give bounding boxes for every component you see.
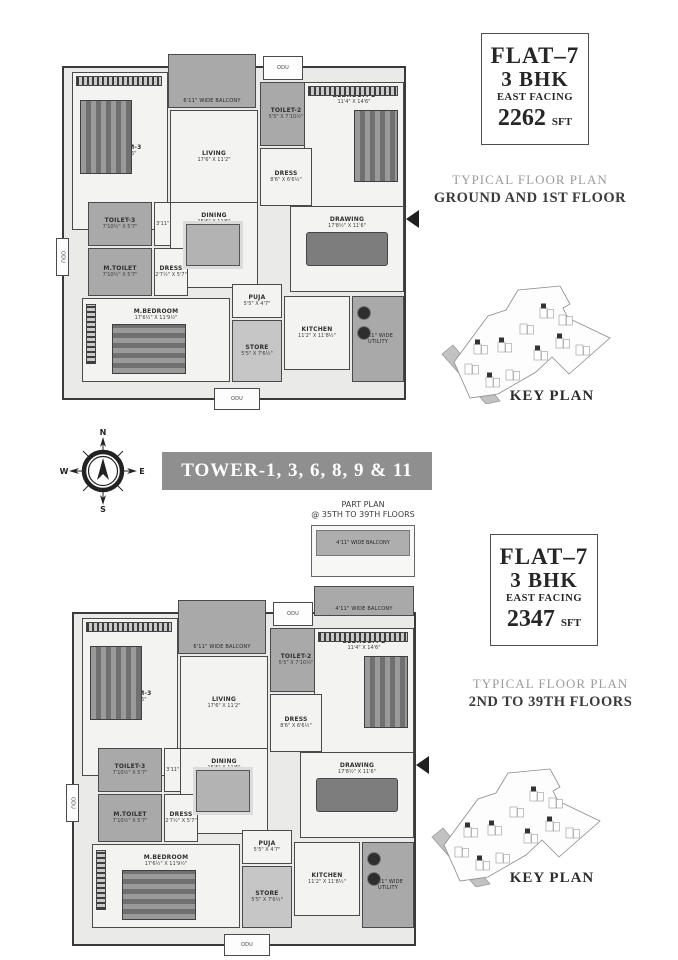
room-dims: 17'6" X 11'2" <box>197 157 230 163</box>
room-dims: 5'5" X 4'7" <box>254 847 281 853</box>
compass-n: N <box>100 428 107 437</box>
part-plan-title: PART PLAN <box>298 500 428 510</box>
tower-block <box>530 791 537 801</box>
room-living: LIVING17'6" X 11'2" <box>170 110 258 204</box>
compass-s: S <box>100 505 106 514</box>
flat-area: 2262 SFT <box>482 105 588 133</box>
room-dims: 17'8½" X 11'6" <box>338 769 376 775</box>
highlighted-flat-marker <box>541 304 546 309</box>
room-dims: 11'4" X 14'6" <box>347 645 380 651</box>
room-name: LIVING <box>212 696 236 703</box>
room-name: ODU <box>70 797 76 809</box>
bed-bedroom3-icon <box>80 100 132 174</box>
wardrobe-bedroom3-icon <box>86 622 172 632</box>
flat-bhk: 3 BHK <box>491 569 597 592</box>
room-toilet3: TOILET-37'10½" X 5'7" <box>88 202 152 246</box>
room-dims: 8'6" X 6'6½" <box>270 177 302 183</box>
room-dims: 2'7½" X 5'7" <box>165 818 197 824</box>
compass-w: W <box>60 467 69 476</box>
tower-block <box>549 798 556 808</box>
wardrobe-mbedroom-icon <box>96 850 106 910</box>
room-dims: 17'6½" X 11'9½" <box>135 315 178 321</box>
sofa-icon <box>316 778 398 812</box>
highlighted-flat-marker <box>475 340 480 345</box>
tower-block <box>510 807 517 817</box>
highlighted-flat-marker <box>531 787 536 792</box>
tower-block <box>564 340 570 349</box>
tower-block <box>455 847 462 857</box>
tower-block <box>465 364 472 374</box>
tower-block <box>554 823 560 832</box>
part-plan: PART PLAN @ 35TH TO 39TH FLOORS 4'11" WI… <box>298 500 428 577</box>
tower-block <box>484 862 490 871</box>
brochure-page: 6'11" WIDE BALCONYODUBEDROOM-311'6" X 14… <box>0 0 678 960</box>
sofa-icon <box>306 232 388 266</box>
room-balcony-living: 6'11" WIDE BALCONY <box>168 54 256 108</box>
room-name: 6'11" WIDE BALCONY <box>191 644 252 650</box>
room-name: ODU <box>231 396 243 402</box>
room-dims: 5'5" X 4'7" <box>244 301 271 307</box>
room-odu-top: ODU <box>263 56 303 80</box>
tower-block <box>488 825 495 835</box>
part-plan-subtitle: @ 35TH TO 39TH FLOORS <box>298 510 428 520</box>
tower-block <box>532 835 538 844</box>
dryer-icon <box>367 872 381 886</box>
room-dressm: DRESS2'7½" X 5'7" <box>164 794 198 842</box>
room-mtoilet: M.TOILET7'10½" X 5'7" <box>98 794 162 842</box>
bed-mbedroom-icon <box>122 870 196 920</box>
flat-info-card-top: FLAT–7 3 BHK EAST FACING 2262 SFT <box>481 33 589 145</box>
tower-block <box>576 345 583 355</box>
tower-block <box>506 370 513 380</box>
room-odu-top: ODU <box>273 602 313 626</box>
tower-block <box>546 821 553 831</box>
wardrobe-bedroom3-icon <box>76 76 162 86</box>
room-odu-left: ODU <box>56 238 69 276</box>
room-dims: 5'5" X 7'10½" <box>269 114 304 120</box>
tower-block <box>506 344 512 353</box>
room-dims: 11'2" X 11'8½" <box>308 879 346 885</box>
caption-type: TYPICAL FLOOR PLAN <box>458 676 643 693</box>
room-dims: 17'6½" X 11'9½" <box>145 861 188 867</box>
highlighted-flat-marker <box>465 823 470 828</box>
dryer-icon <box>357 326 371 340</box>
room-living: LIVING17'6" X 11'2" <box>180 656 268 750</box>
floor-plan-2nd-39th: 6'11" WIDE BALCONYODUBEDROOM-311'6" X 14… <box>64 584 432 958</box>
room-dims: 7'10½" X 5'7" <box>103 224 138 230</box>
room-dims: 2'7½" X 5'7" <box>155 272 187 278</box>
highlighted-flat-marker <box>489 821 494 826</box>
room-store: STORE5'5" X 7'6½" <box>232 320 282 382</box>
room-kitchen: KITCHEN11'2" X 11'8½" <box>294 842 360 916</box>
room-dims: 5'5" X 7'6½" <box>251 897 283 903</box>
area-value: 2262 <box>498 105 546 131</box>
compass-rose: N S W E <box>60 428 146 514</box>
tower-block <box>556 338 563 348</box>
tower-block <box>518 809 524 818</box>
room-odu-bottom: ODU <box>224 934 270 956</box>
room-name: ODU <box>277 65 289 71</box>
room-dressm: DRESS2'7½" X 5'7" <box>154 248 188 296</box>
tower-block <box>574 830 580 839</box>
tower-block <box>464 827 471 837</box>
highlighted-flat-marker <box>535 346 540 351</box>
room-name: ODU <box>60 251 66 263</box>
room-name: PUJA <box>259 840 276 847</box>
tower-block <box>498 342 505 352</box>
tower-block <box>473 366 479 375</box>
room-store: STORE5'5" X 7'6½" <box>242 866 292 928</box>
room-balcony-living: 6'11" WIDE BALCONY <box>178 600 266 654</box>
compass-e: E <box>139 467 144 476</box>
highlighted-flat-marker <box>547 817 552 822</box>
room-dims: 17'6" X 11'2" <box>207 703 240 709</box>
room-name: LIVING <box>202 150 226 157</box>
tower-block <box>557 800 563 809</box>
flat-info-card-bottom: FLAT–7 3 BHK EAST FACING 2347 SFT <box>490 534 598 646</box>
key-plan-map-bottom: 100' WIDE ROAD <box>430 765 610 887</box>
dining-table-icon <box>196 770 250 812</box>
room-dims: 5'5" X 7'6½" <box>241 351 273 357</box>
tower-block <box>496 853 503 863</box>
tower-block <box>540 308 547 318</box>
tower-banner-label: TOWER-1, 3, 6, 8, 9 & 11 <box>181 460 413 482</box>
flat-facing: EAST FACING <box>482 91 588 105</box>
plan-caption-top: TYPICAL FLOOR PLAN GROUND AND 1ST FLOOR <box>425 172 635 207</box>
room-name: PUJA <box>249 294 266 301</box>
flat-bhk: 3 BHK <box>482 68 588 91</box>
highlighted-flat-marker <box>499 338 504 343</box>
tower-block <box>514 372 520 381</box>
tower-block <box>566 828 573 838</box>
tower-block <box>476 860 483 870</box>
room-name: ODU <box>287 611 299 617</box>
tower-block <box>494 379 500 388</box>
caption-type: TYPICAL FLOOR PLAN <box>425 172 635 189</box>
tower-block <box>548 310 554 319</box>
tower-block <box>520 324 527 334</box>
washer-icon <box>367 852 381 866</box>
room-name: 4'11" WIDE BALCONY <box>333 606 394 612</box>
key-plan-title-top: KEY PLAN <box>492 388 612 405</box>
key-plan-title-bottom: KEY PLAN <box>492 870 612 887</box>
wardrobe-bedroom2-icon <box>308 86 398 96</box>
room-dims: 7'10½" X 5'7" <box>113 770 148 776</box>
room-name: 6'11" WIDE BALCONY <box>181 98 242 104</box>
east-entry-arrow-icon <box>416 756 429 774</box>
part-plan-fragment: 4'11" WIDE BALCONY <box>311 525 415 577</box>
room-odu-left: ODU <box>66 784 79 822</box>
area-unit: SFT <box>561 617 581 629</box>
tower-block <box>584 347 590 356</box>
room-dims: 7'10½" X 5'7" <box>103 272 138 278</box>
tower-block <box>528 326 534 335</box>
room-name: DINING <box>211 758 237 765</box>
tower-block <box>472 829 478 838</box>
room-puja: PUJA5'5" X 4'7" <box>242 830 292 864</box>
room-name: DINING <box>201 212 227 219</box>
room-dims: 17'8½" X 11'6" <box>328 223 366 229</box>
tower-block <box>474 344 481 354</box>
bed-bedroom2-icon <box>364 656 408 728</box>
room-dims: 11'2" X 11'8½" <box>298 333 336 339</box>
room-balcony-top: 4'11" WIDE BALCONY <box>314 586 414 616</box>
floor-plan-ground-1st: 6'11" WIDE BALCONYODUBEDROOM-311'6" X 14… <box>54 52 422 424</box>
tower-block <box>567 317 573 326</box>
tower-block <box>538 793 544 802</box>
room-name: ODU <box>241 942 253 948</box>
plan-caption-bottom: TYPICAL FLOOR PLAN 2ND TO 39TH FLOORS <box>458 676 643 711</box>
highlighted-flat-marker <box>525 829 530 834</box>
tower-block <box>486 377 493 387</box>
highlighted-flat-marker <box>557 334 562 339</box>
highlighted-flat-marker <box>487 373 492 378</box>
room-odu-bottom: ODU <box>214 388 260 410</box>
flat-area: 2347 SFT <box>491 606 597 634</box>
tower-block <box>534 350 541 360</box>
flat-title: FLAT–7 <box>482 44 588 68</box>
wardrobe-bedroom2-icon <box>318 632 408 642</box>
part-plan-balcony-label: 4'11" WIDE BALCONY <box>336 540 390 546</box>
tower-banner: TOWER-1, 3, 6, 8, 9 & 11 <box>162 452 432 490</box>
room-dress2: DRESS8'6" X 6'6½" <box>270 694 322 752</box>
tower-block <box>559 315 566 325</box>
bed-mbedroom-icon <box>112 324 186 374</box>
bed-bedroom3-icon <box>90 646 142 720</box>
tower-block <box>504 855 510 864</box>
room-dims: 5'5" X 7'10½" <box>279 660 314 666</box>
key-plan-map-top: 100' WIDE ROAD <box>440 282 620 404</box>
tower-block <box>463 849 469 858</box>
caption-floors: GROUND AND 1ST FLOOR <box>425 189 635 207</box>
wardrobe-mbedroom-icon <box>86 304 96 364</box>
highlighted-flat-marker <box>477 856 482 861</box>
part-plan-balcony: 4'11" WIDE BALCONY <box>316 530 410 556</box>
room-dims: 11'4" X 14'6" <box>337 99 370 105</box>
room-dims: 7'10½" X 5'7" <box>113 818 148 824</box>
flat-title: FLAT–7 <box>491 545 597 569</box>
east-entry-arrow-icon <box>406 210 419 228</box>
area-unit: SFT <box>552 116 572 128</box>
room-dims: 8'6" X 6'6½" <box>280 723 312 729</box>
area-value: 2347 <box>507 606 555 632</box>
room-toilet3: TOILET-37'10½" X 5'7" <box>98 748 162 792</box>
flat-facing: EAST FACING <box>491 592 597 606</box>
washer-icon <box>357 306 371 320</box>
dining-table-icon <box>186 224 240 266</box>
tower-block <box>524 833 531 843</box>
room-dress2: DRESS8'6" X 6'6½" <box>260 148 312 206</box>
tower-block <box>542 352 548 361</box>
room-puja: PUJA5'5" X 4'7" <box>232 284 282 318</box>
room-mtoilet: M.TOILET7'10½" X 5'7" <box>88 248 152 296</box>
tower-block <box>482 346 488 355</box>
bed-bedroom2-icon <box>354 110 398 182</box>
caption-floors: 2ND TO 39TH FLOORS <box>458 693 643 711</box>
room-kitchen: KITCHEN11'2" X 11'8½" <box>284 296 350 370</box>
tower-block <box>496 827 502 836</box>
